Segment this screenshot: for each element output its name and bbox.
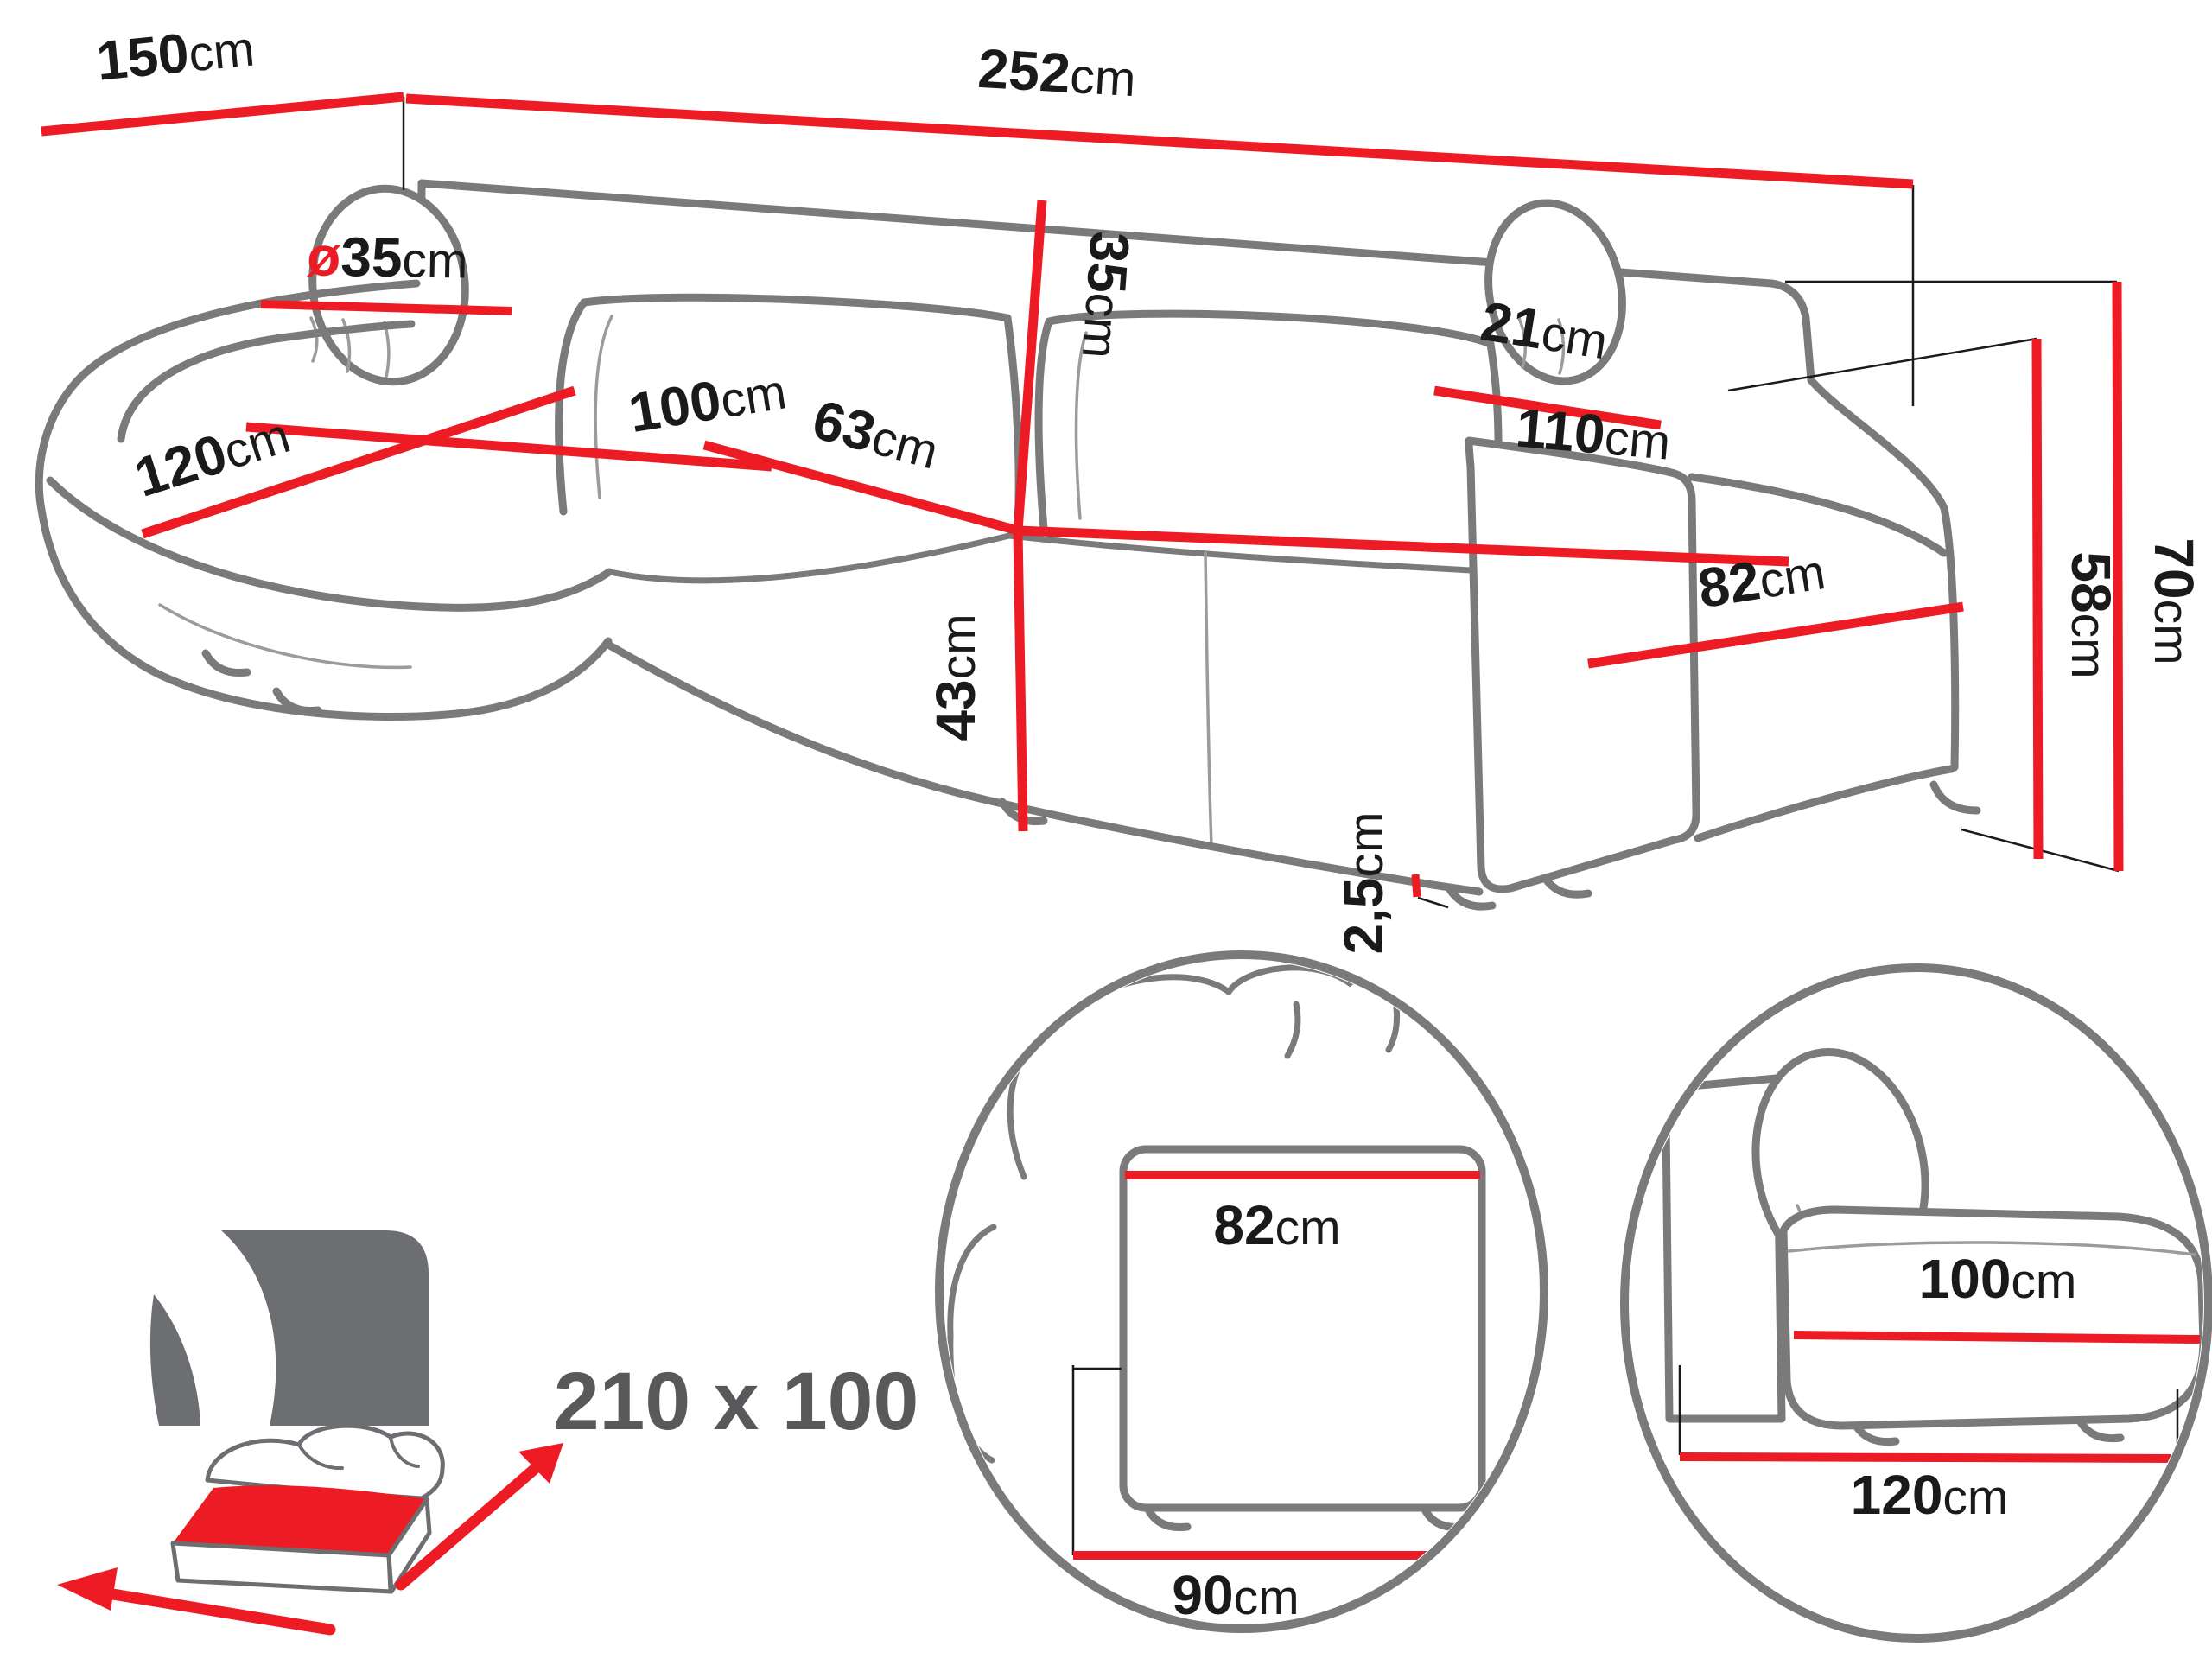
dim-label-chaise-length: 150cm bbox=[93, 16, 257, 92]
dim-line-seat-height bbox=[1018, 531, 1023, 831]
moon-crescent-shape bbox=[150, 1294, 200, 1426]
diagram-canvas: 150cm 252cm ø35cm 35cm 120cm 100cm 63cm … bbox=[0, 0, 2212, 1659]
dim-line-leg-height bbox=[1415, 874, 1417, 897]
dim-label-leg-height: 2,5cm bbox=[1332, 812, 1395, 955]
chaise-front-crease bbox=[160, 605, 410, 667]
dim-label-armrest-depth: 82cm bbox=[1694, 538, 1829, 620]
chaise-seat-edge bbox=[50, 480, 609, 607]
dim-line-armrest-height bbox=[2037, 339, 2038, 859]
dim-line-chaise-length bbox=[41, 97, 404, 131]
dim-label-seat-height: 43cm bbox=[925, 613, 987, 741]
detail-circle-chaise: 100cm 120cm bbox=[1624, 968, 2209, 1638]
dim-label-total-width: 252cm bbox=[976, 37, 1138, 108]
detail-label-chaise-bottom: 120cm bbox=[1851, 1464, 2009, 1526]
night-sky-shape bbox=[221, 1230, 429, 1426]
armrest-outline bbox=[1469, 441, 1696, 889]
sleeping-area-label: 210 x 100 bbox=[554, 1356, 919, 1447]
detail-label-armrest-top: 82cm bbox=[1213, 1194, 1340, 1256]
seat-front-edge bbox=[610, 536, 1009, 581]
back-cushion-crease bbox=[1077, 333, 1086, 518]
extension-line bbox=[1728, 339, 2037, 391]
bed-drawing bbox=[57, 1426, 563, 1630]
detail-label-armrest-bottom: 90cm bbox=[1172, 1564, 1299, 1626]
detail-dim-line-top bbox=[1794, 1335, 2200, 1339]
dim-label-total-height: 70cm bbox=[2143, 537, 2205, 664]
base-edge-right bbox=[1698, 769, 1951, 838]
dim-label-chaise-seat-depth: 100cm bbox=[625, 358, 791, 444]
dimension-labels: 150cm 252cm ø35cm 35cm 120cm 100cm 63cm … bbox=[93, 16, 2205, 955]
seat-divider bbox=[1205, 553, 1211, 845]
armrest-top-back-edge bbox=[1692, 477, 1944, 553]
dim-label-back-cushion-height: 35cm bbox=[1071, 230, 1141, 361]
sofa-legs bbox=[206, 653, 1977, 906]
extension-line bbox=[1418, 898, 1448, 907]
dim-line-total-width bbox=[406, 99, 1913, 184]
dim-line-pillow-diameter bbox=[261, 304, 512, 311]
dim-label-seat-depth: 63cm bbox=[806, 388, 945, 481]
dim-label-pillow-diameter: ø35cm bbox=[307, 225, 468, 289]
dim-label-armrest-height: 58cm bbox=[2060, 551, 2122, 678]
detail-circle-armrest: 82cm 90cm bbox=[939, 955, 1545, 1629]
sofa-outline bbox=[39, 181, 1977, 906]
back-cushion-crease bbox=[595, 316, 612, 498]
detail-dim-line-bottom bbox=[1680, 1457, 2179, 1459]
chaise-outline bbox=[39, 283, 608, 717]
detail-label-chaise-top: 100cm bbox=[1919, 1248, 2077, 1310]
backrest-outline bbox=[422, 183, 1955, 767]
sofa-dimension-diagram: 150cm 252cm ø35cm 35cm 120cm 100cm 63cm … bbox=[0, 0, 2212, 1659]
